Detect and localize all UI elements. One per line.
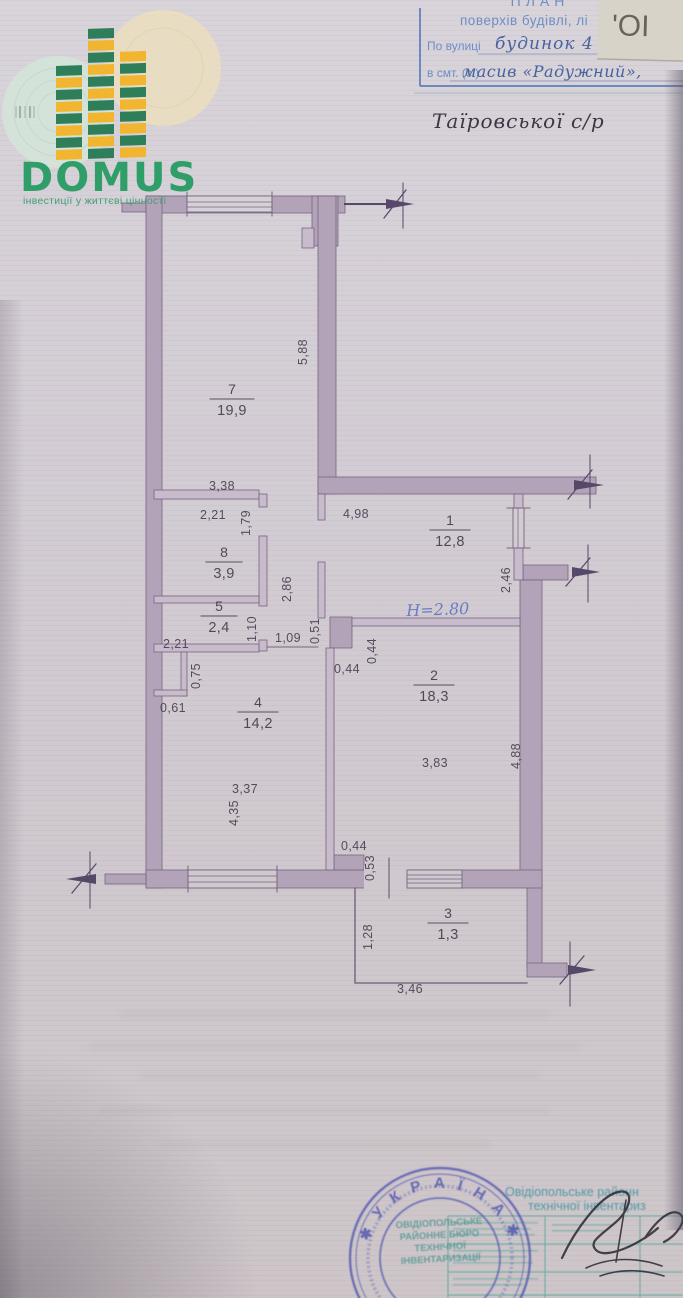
window-room4-bottom: [188, 866, 277, 892]
room-area: 12,8: [435, 534, 465, 550]
room-number: 8: [220, 544, 228, 560]
room-area: 2,4: [208, 620, 229, 636]
dim-hall-width: 1,09: [275, 631, 301, 645]
dim-room5-width: 2,21: [163, 637, 189, 651]
dim-balcony-door-width: 0,44: [341, 839, 367, 853]
dim-step: 0,51: [308, 618, 322, 644]
dim-room7-height: 5,88: [296, 339, 310, 365]
dim-balcony-height: 1,28: [361, 924, 375, 950]
dim-room4-height: 4,35: [227, 800, 241, 826]
dim-room4-width: 3,37: [232, 782, 258, 796]
dim-balcony-width: 3,46: [397, 982, 423, 996]
document-photo: 7 19,9 8 3,9 5 2,4 1 12,8 2: [0, 0, 683, 1298]
logo-tagline: інвестиції у життєві цінності: [23, 195, 166, 207]
dim-room2-height: 4,88: [509, 743, 523, 769]
street-value: будинок 4: [495, 34, 594, 54]
tower-right: [120, 51, 146, 158]
corner-card: 'ОІ: [597, 0, 683, 61]
photo-edge-right: [664, 70, 683, 1230]
dim-balcony-door-height: 0,53: [363, 855, 377, 881]
room-area: 1,3: [437, 927, 458, 943]
photo-corner-shadow: [0, 1050, 260, 1298]
room-area: 19,9: [217, 403, 247, 419]
room-number: 7: [228, 381, 236, 397]
room-number: 1: [446, 512, 454, 528]
dim-pillar-height: 0,44: [365, 638, 379, 664]
dim-corridor-height: 2,86: [280, 576, 294, 602]
dim-room5-height: 1,10: [245, 616, 259, 642]
dim-pillar-width: 0,44: [334, 662, 360, 676]
room-area: 14,2: [243, 716, 273, 732]
dim-room8-width: 2,21: [200, 508, 226, 522]
room-area: 3,9: [213, 566, 234, 582]
street-label: По вулиці: [427, 39, 481, 53]
room-number: 4: [254, 694, 262, 710]
dim-room7-width: 3,38: [209, 479, 235, 493]
window-room2-balcony: [407, 870, 462, 888]
dim-room1-side: 2,46: [499, 567, 513, 593]
form-subtitle: поверхів будівлі, лі: [460, 13, 588, 28]
corner-card-mark: 'ОІ: [612, 9, 650, 43]
ceiling-height-note: Н=2.80: [405, 599, 470, 620]
dim-closet-height: 0,75: [189, 663, 203, 689]
tower-middle: [88, 28, 114, 159]
dim-closet-width: 0,61: [160, 701, 186, 715]
form-title: ПЛАН: [511, 0, 570, 9]
room-number: 3: [444, 905, 452, 921]
room-area: 18,3: [419, 689, 449, 705]
council-name: Таїровської с/р: [432, 109, 605, 133]
room-number: 5: [215, 598, 223, 614]
window-room7-top: [187, 192, 272, 216]
dim-room1-width: 4,98: [343, 507, 369, 521]
room-number: 2: [430, 667, 438, 683]
dim-room2-width: 3,83: [422, 756, 448, 770]
settlement-value: масив «Радужний»,: [463, 62, 642, 81]
dim-room8-height: 1,79: [239, 510, 253, 536]
